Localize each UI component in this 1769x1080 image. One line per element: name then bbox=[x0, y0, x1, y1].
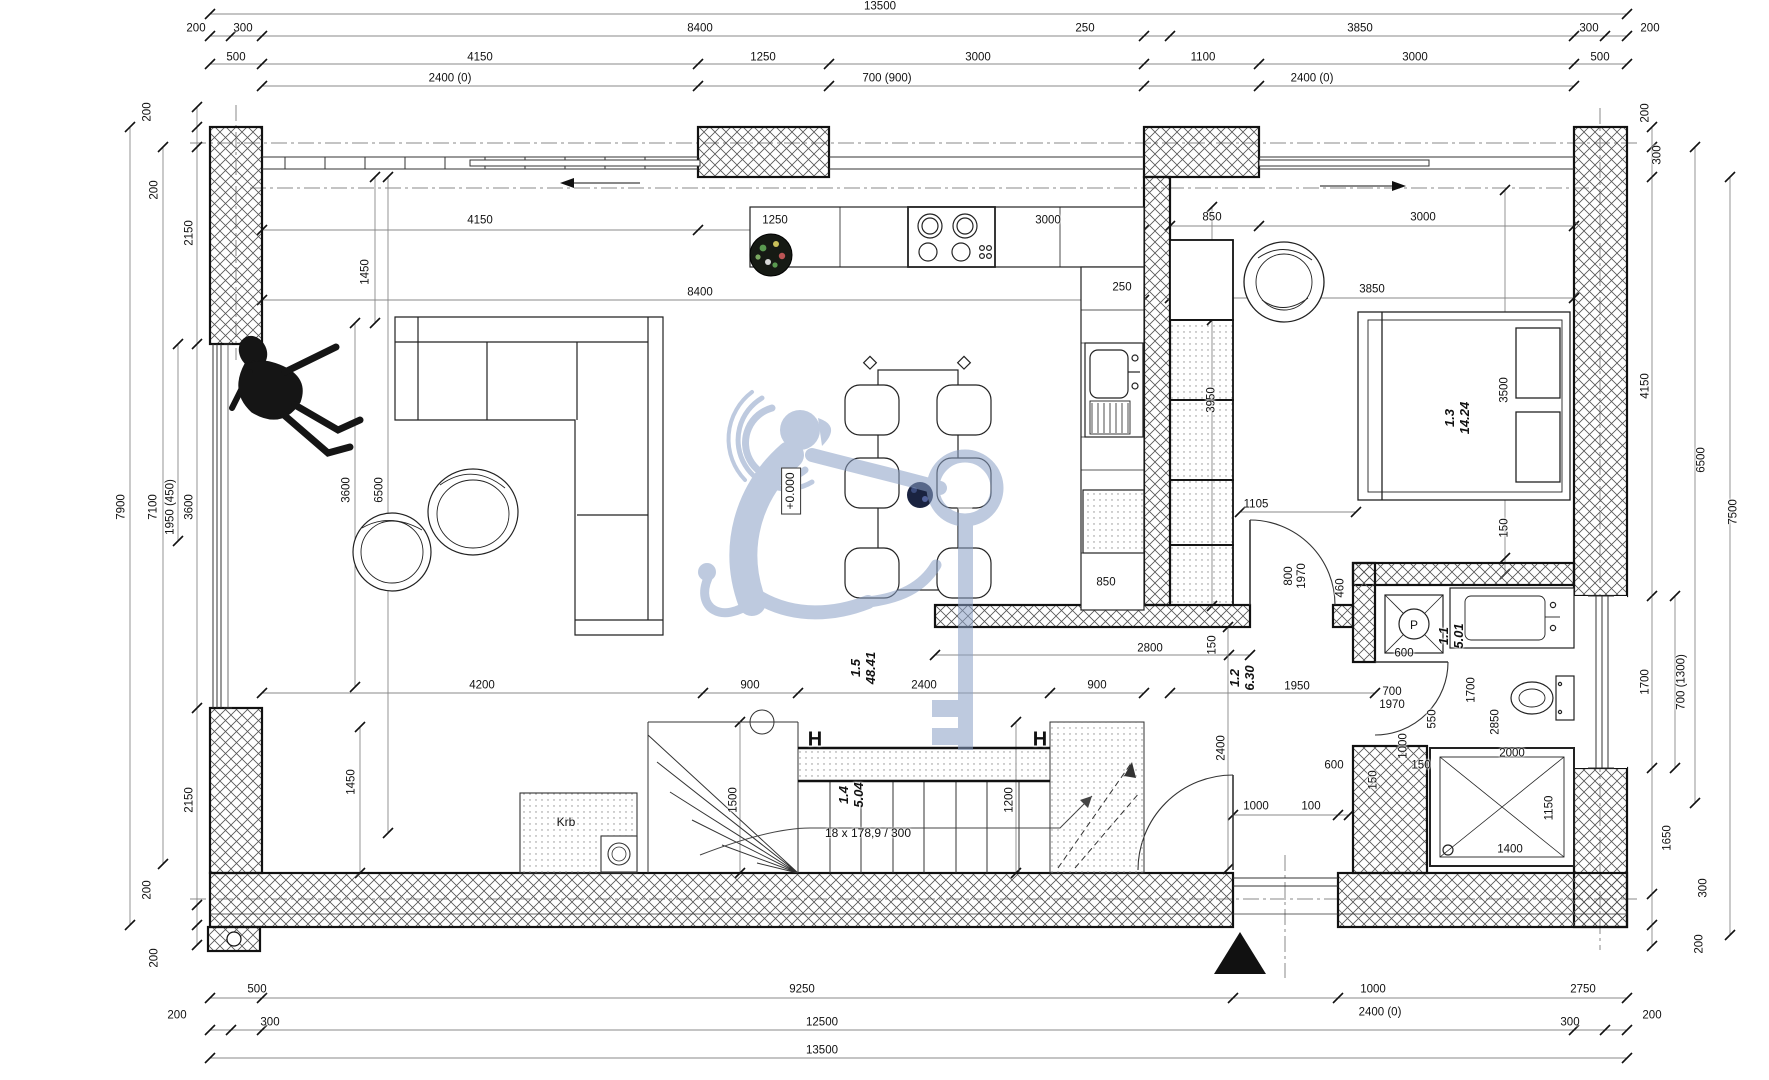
pillow bbox=[1516, 412, 1560, 482]
potted-plant bbox=[750, 234, 792, 276]
shower bbox=[1430, 748, 1574, 866]
vanity-sink bbox=[1450, 588, 1574, 648]
table-corner-mark bbox=[864, 356, 877, 369]
pouf bbox=[353, 513, 431, 591]
wall-pier-top-left bbox=[210, 127, 262, 344]
cooktop bbox=[908, 207, 995, 267]
wall-door-stub bbox=[1333, 605, 1353, 627]
kitchen-counter-side bbox=[1081, 267, 1144, 610]
wall-bottom-left bbox=[210, 873, 1233, 927]
wall-pier-bottom-left bbox=[210, 708, 262, 873]
armchair bbox=[1244, 242, 1324, 322]
washing-machine: P bbox=[1385, 595, 1443, 653]
pillow bbox=[1516, 328, 1560, 398]
wall-pier-top-center bbox=[698, 127, 829, 177]
person-figure bbox=[232, 332, 360, 453]
kitchen-base-cabinet bbox=[1083, 490, 1144, 553]
wall-divider-kitchen-bedroom bbox=[1144, 177, 1170, 605]
bedroom-door bbox=[1250, 520, 1335, 605]
bedroom bbox=[1244, 242, 1570, 500]
toilet bbox=[1511, 676, 1574, 720]
bathroom-door bbox=[1375, 662, 1448, 735]
coffee-table bbox=[428, 469, 518, 555]
wall-right-upper bbox=[1574, 127, 1627, 596]
kitchen-sink bbox=[1085, 343, 1143, 437]
bedroom-wardrobe bbox=[1170, 240, 1233, 605]
fireplace bbox=[520, 793, 637, 873]
sliding-door-left bbox=[262, 157, 700, 188]
wall-bathroom-pier bbox=[1353, 746, 1427, 873]
window-kitchen-top bbox=[829, 157, 1144, 169]
svg-text:P: P bbox=[1410, 618, 1418, 632]
staircase bbox=[648, 710, 1144, 873]
entry-door bbox=[1138, 775, 1338, 886]
beam-h-h bbox=[798, 748, 1050, 781]
window-left-wall bbox=[213, 344, 232, 708]
window-bathroom-right bbox=[1574, 596, 1627, 768]
sofa bbox=[395, 317, 663, 635]
living-room bbox=[232, 317, 663, 635]
wall-bottom-right bbox=[1338, 873, 1627, 927]
bed bbox=[1358, 312, 1570, 500]
wall-pier-top-right bbox=[1144, 127, 1259, 177]
north-arrow-icon bbox=[1214, 932, 1266, 974]
sliding-door-bedroom bbox=[1259, 157, 1574, 191]
slide-arrow-right-icon bbox=[1392, 181, 1406, 191]
slide-arrow-left-icon bbox=[560, 178, 574, 188]
drain-symbol bbox=[227, 932, 241, 946]
floor-plan-sheet: P bbox=[0, 0, 1769, 1080]
floor-plan-drawing: P bbox=[0, 0, 1769, 1080]
wall-bathroom-top bbox=[1353, 563, 1574, 585]
table-corner-mark bbox=[958, 356, 971, 369]
lion-tail-tuft bbox=[698, 563, 716, 581]
stair-landing bbox=[1050, 722, 1144, 873]
wall-bathroom-left bbox=[1353, 563, 1375, 662]
